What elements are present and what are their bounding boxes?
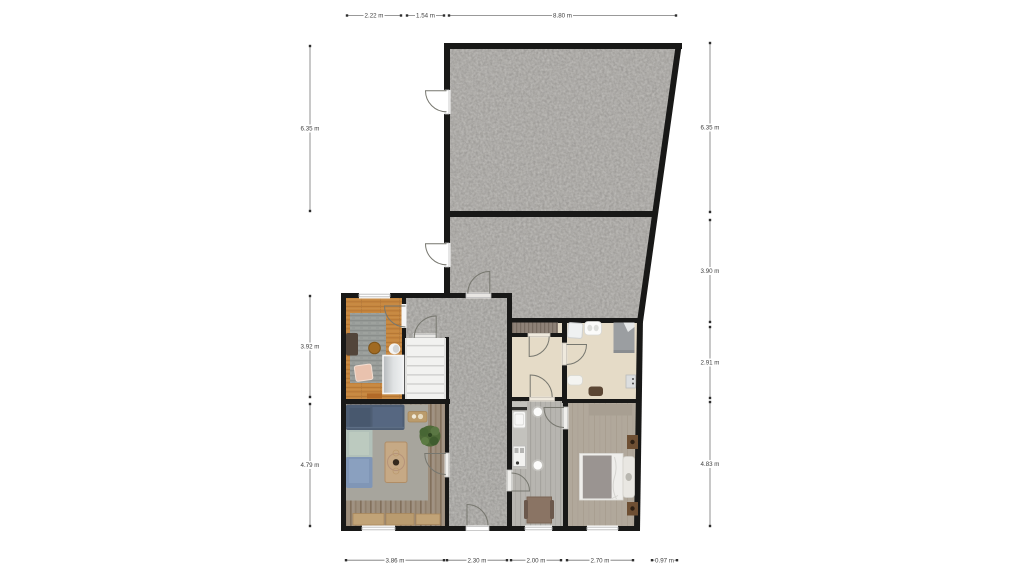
svg-text:1.54 m: 1.54 m — [416, 13, 435, 20]
svg-text:2.00 m: 2.00 m — [527, 557, 546, 564]
svg-text:6.35 m: 6.35 m — [701, 125, 720, 132]
svg-text:6.35 m: 6.35 m — [301, 126, 320, 133]
svg-text:2.70 m: 2.70 m — [591, 557, 610, 564]
svg-text:3.90 m: 3.90 m — [701, 268, 720, 275]
svg-text:2.91 m: 2.91 m — [701, 360, 720, 367]
svg-text:3.86 m: 3.86 m — [386, 557, 405, 564]
svg-text:0.97 m: 0.97 m — [655, 557, 674, 564]
svg-text:2.22 m: 2.22 m — [365, 13, 384, 20]
svg-text:8.80 m: 8.80 m — [553, 13, 572, 20]
svg-text:4.83 m: 4.83 m — [701, 461, 720, 468]
svg-text:2.30 m: 2.30 m — [468, 557, 487, 564]
svg-text:3.92 m: 3.92 m — [301, 344, 320, 351]
svg-text:4.79 m: 4.79 m — [301, 462, 320, 469]
